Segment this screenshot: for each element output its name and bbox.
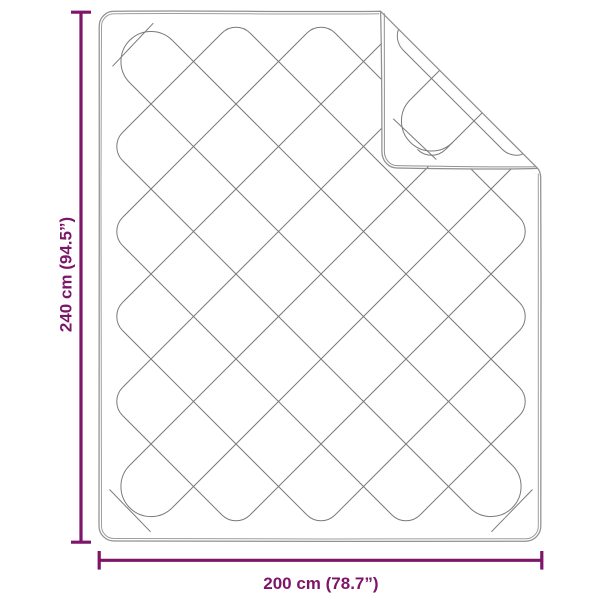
svg-text:240 cm (94.5”): 240 cm (94.5”) [57,217,76,332]
svg-text:200 cm (78.7”): 200 cm (78.7”) [263,574,378,593]
